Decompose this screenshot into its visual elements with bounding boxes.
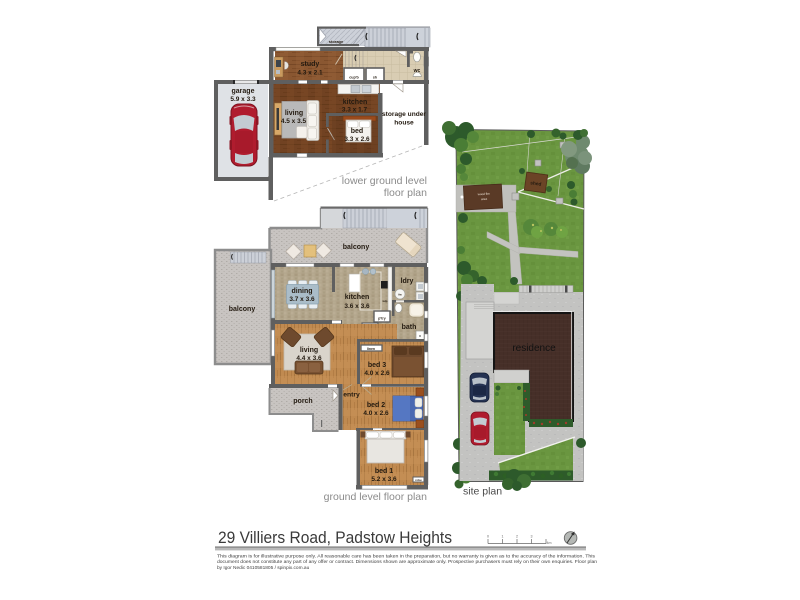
svg-text:29 Villiers Road, Padstow Heig: 29 Villiers Road, Padstow Heights <box>218 529 452 547</box>
svg-text:balcony: balcony <box>229 306 256 313</box>
svg-text:lower ground level: lower ground level <box>342 175 427 187</box>
svg-text:bed 2: bed 2 <box>367 402 385 409</box>
svg-text:kitchen: kitchen <box>343 99 368 106</box>
svg-text:3: 3 <box>531 535 533 539</box>
svg-text:kitchen: kitchen <box>345 294 370 301</box>
svg-text:3.6 x 3.6: 3.6 x 3.6 <box>344 303 370 310</box>
svg-text:3.7 x 3.6: 3.7 x 3.6 <box>289 296 315 303</box>
svg-text:w/p: w/p <box>382 299 388 303</box>
svg-text:bed 1: bed 1 <box>375 468 393 475</box>
svg-text:residence: residence <box>512 343 556 354</box>
svg-text:floor plan: floor plan <box>384 187 427 199</box>
svg-text:garage: garage <box>232 88 255 95</box>
svg-text:ground level floor plan: ground level floor plan <box>324 491 427 503</box>
svg-text:entry: entry <box>343 392 360 399</box>
svg-text:balcony: balcony <box>343 244 370 251</box>
svg-text:storage: storage <box>329 39 344 44</box>
svg-text:wc: wc <box>413 68 421 74</box>
svg-text:by Igor Nedic 0410581805 / spi: by Igor Nedic 0410581805 / spinpix.com.a… <box>217 565 310 571</box>
svg-text:robe: robe <box>415 478 422 482</box>
svg-text:linen: linen <box>367 347 375 351</box>
svg-text:cup'b: cup'b <box>349 76 359 80</box>
svg-text:2: 2 <box>516 535 518 539</box>
svg-text:ldry: ldry <box>401 278 414 285</box>
svg-text:area: area <box>481 197 488 201</box>
svg-text:4m: 4m <box>547 541 552 545</box>
svg-text:dining: dining <box>292 288 313 295</box>
svg-text:bed 3: bed 3 <box>368 362 386 369</box>
svg-text:5.2 x 3.6: 5.2 x 3.6 <box>371 476 397 483</box>
svg-text:study: study <box>301 61 320 68</box>
svg-text:porch: porch <box>293 398 312 405</box>
svg-text:wood fire: wood fire <box>478 192 491 197</box>
svg-text:4.0 x 2.6: 4.0 x 2.6 <box>364 370 390 377</box>
svg-text:1: 1 <box>502 535 504 539</box>
svg-text:0: 0 <box>487 535 489 539</box>
svg-text:3.3 x 2.6: 3.3 x 2.6 <box>344 136 370 143</box>
svg-text:sh: sh <box>373 76 377 80</box>
svg-text:4.0 x 2.6: 4.0 x 2.6 <box>363 410 389 417</box>
svg-text:4.3 x 2.1: 4.3 x 2.1 <box>297 69 323 76</box>
svg-text:storage under: storage under <box>382 111 426 118</box>
svg-text:document does not constitute a: document does not constitute any part of… <box>217 559 597 565</box>
svg-text:bath: bath <box>402 324 417 331</box>
svg-text:house: house <box>394 120 414 127</box>
svg-text:site plan: site plan <box>463 486 502 498</box>
svg-text:5.9 x 3.3: 5.9 x 3.3 <box>230 96 256 103</box>
svg-text:living: living <box>300 347 318 354</box>
svg-text:p'try: p'try <box>378 317 385 321</box>
svg-text:bed: bed <box>351 128 363 135</box>
svg-text:living: living <box>285 110 303 117</box>
svg-text:This diagram is for illustrati: This diagram is for illustrative purpose… <box>217 553 596 559</box>
svg-text:4.4 x 3.6: 4.4 x 3.6 <box>296 355 322 362</box>
svg-text:3.3 x 1.7: 3.3 x 1.7 <box>342 107 368 114</box>
svg-text:4.5 x 3.5: 4.5 x 3.5 <box>281 118 307 125</box>
